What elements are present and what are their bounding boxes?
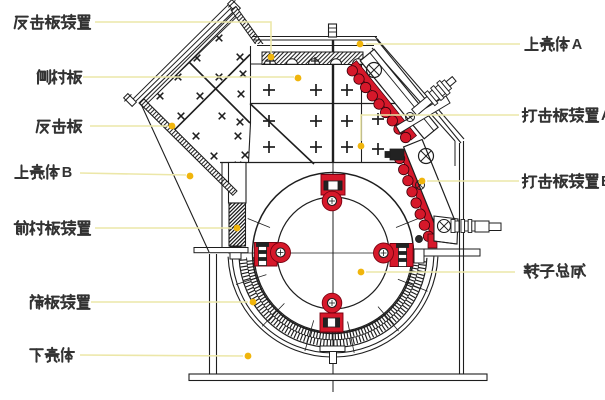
svg-text:A: A (572, 37, 583, 53)
svg-text:B: B (601, 174, 605, 190)
svg-text:B: B (62, 165, 72, 181)
svg-text:A: A (601, 108, 605, 124)
